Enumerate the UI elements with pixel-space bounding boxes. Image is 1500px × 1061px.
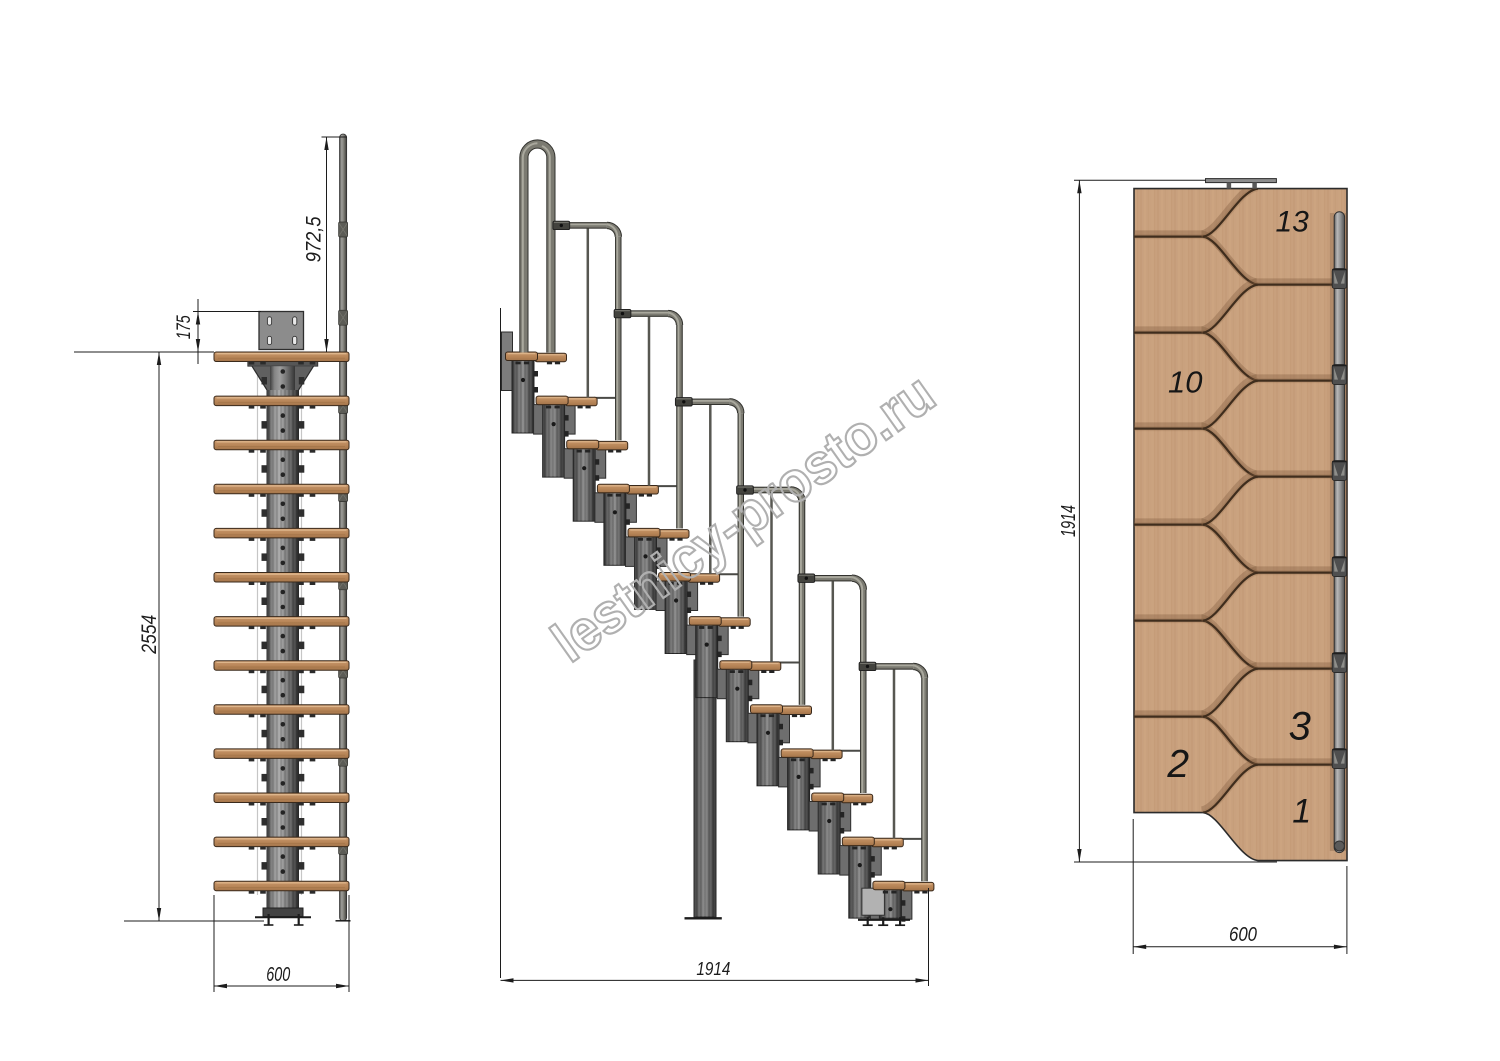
svg-text:2: 2 <box>1166 743 1189 786</box>
svg-text:972,5: 972,5 <box>303 216 326 262</box>
svg-text:3: 3 <box>1289 704 1311 748</box>
svg-text:10: 10 <box>1168 365 1202 400</box>
svg-text:13: 13 <box>1276 206 1310 239</box>
svg-text:1: 1 <box>1292 792 1311 830</box>
svg-text:600: 600 <box>266 964 290 986</box>
svg-text:1914: 1914 <box>1058 505 1080 537</box>
svg-text:2554: 2554 <box>138 615 161 655</box>
svg-text:600: 600 <box>1229 924 1257 946</box>
svg-text:1914: 1914 <box>696 959 730 979</box>
svg-text:175: 175 <box>174 315 195 339</box>
